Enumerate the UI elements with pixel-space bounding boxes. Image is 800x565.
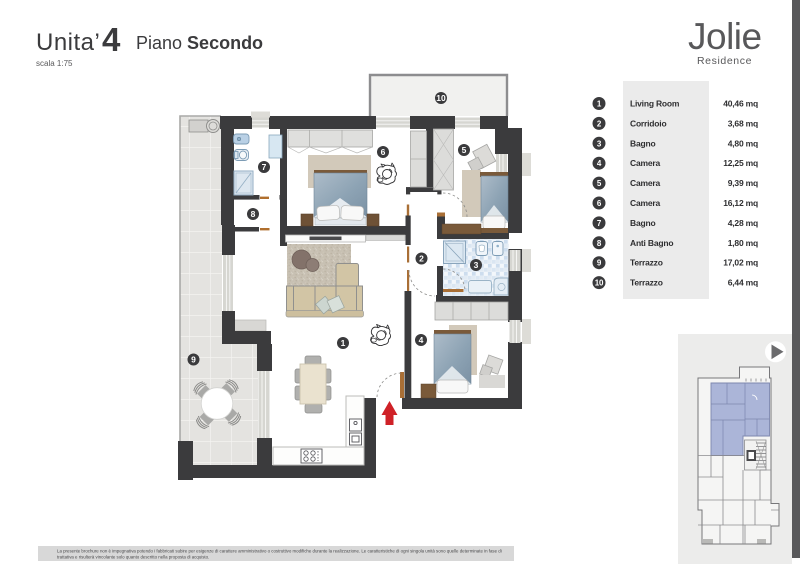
svg-text:Camera: Camera <box>630 198 660 208</box>
svg-text:Terrazzo: Terrazzo <box>630 278 663 288</box>
svg-text:6: 6 <box>381 147 386 157</box>
svg-text:10: 10 <box>595 279 604 288</box>
svg-text:1: 1 <box>341 338 346 348</box>
svg-text:6,44 mq: 6,44 mq <box>728 278 758 288</box>
svg-text:40,46 mq: 40,46 mq <box>723 99 758 109</box>
svg-text:4,28 mq: 4,28 mq <box>728 218 758 228</box>
svg-text:16,12 mq: 16,12 mq <box>723 198 758 208</box>
svg-text:Corridoio: Corridoio <box>630 118 666 128</box>
svg-text:La presente brochure non è imp: La presente brochure non è impegnativa p… <box>57 549 502 554</box>
svg-text:Camera: Camera <box>630 178 660 188</box>
svg-text:Terrazzo: Terrazzo <box>630 258 663 268</box>
svg-text:8: 8 <box>251 209 256 219</box>
svg-text:10: 10 <box>436 93 446 103</box>
svg-text:1,80 mq: 1,80 mq <box>728 238 758 248</box>
svg-text:9: 9 <box>191 355 196 365</box>
svg-text:Camera: Camera <box>630 158 660 168</box>
svg-text:5: 5 <box>462 145 467 155</box>
svg-text:Piano Secondo: Piano Secondo <box>136 33 263 53</box>
svg-text:3,68 mq: 3,68 mq <box>728 118 758 128</box>
svg-text:Bagno: Bagno <box>630 138 655 148</box>
svg-text:9,39 mq: 9,39 mq <box>728 178 758 188</box>
svg-text:Unita’: Unita’ <box>36 29 100 56</box>
svg-text:Living Room: Living Room <box>630 99 680 109</box>
svg-text:4,80 mq: 4,80 mq <box>728 138 758 148</box>
svg-text:12,25 mq: 12,25 mq <box>723 158 758 168</box>
svg-text:7: 7 <box>262 162 267 172</box>
svg-text:4: 4 <box>419 335 424 345</box>
svg-text:scala 1:75: scala 1:75 <box>36 59 73 68</box>
svg-text:Jolie: Jolie <box>688 16 762 57</box>
svg-text:Residence: Residence <box>697 55 752 67</box>
svg-text:trattativa e risulterà vincola: trattativa e risulterà vincolante solo q… <box>57 555 209 560</box>
svg-text:4: 4 <box>102 21 121 58</box>
svg-text:Bagno: Bagno <box>630 218 655 228</box>
svg-text:Anti Bagno: Anti Bagno <box>630 238 673 248</box>
svg-text:3: 3 <box>474 260 479 270</box>
svg-text:2: 2 <box>419 254 424 264</box>
svg-text:17,02 mq: 17,02 mq <box>723 258 758 268</box>
